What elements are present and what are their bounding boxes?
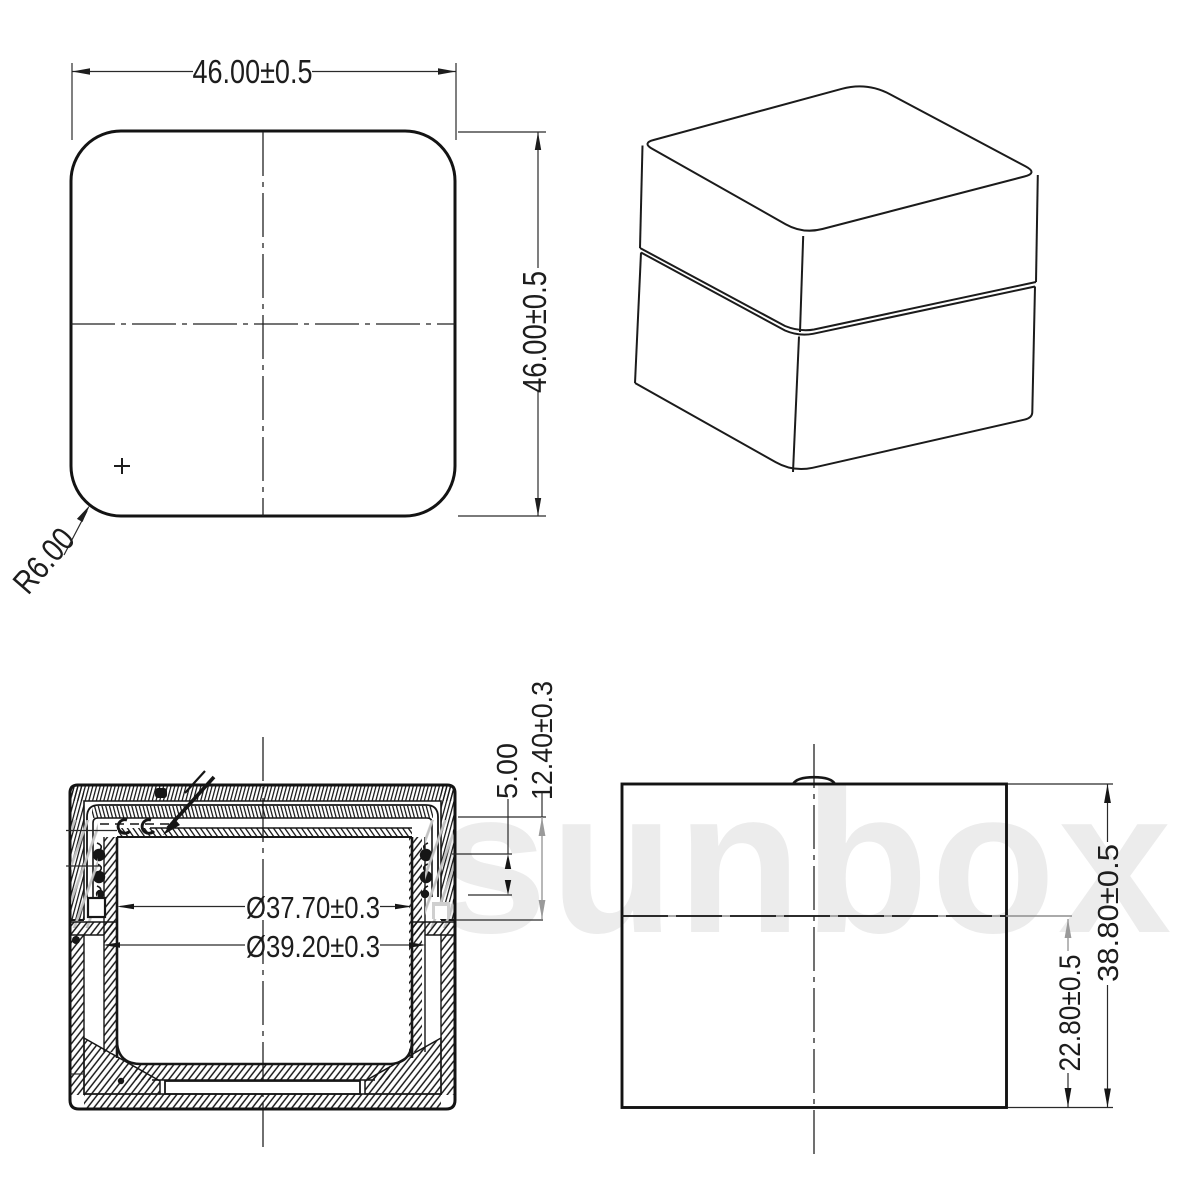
svg-text:5.00: 5.00	[492, 743, 524, 799]
svg-text:12.40±0.3: 12.40±0.3	[527, 681, 559, 800]
svg-text:22.80±0.5: 22.80±0.5	[1054, 955, 1087, 1072]
svg-text:46.00±0.5: 46.00±0.5	[193, 53, 313, 90]
svg-text:Ø39.20±0.3: Ø39.20±0.3	[246, 929, 380, 964]
svg-text:38.80±0.5: 38.80±0.5	[1093, 844, 1125, 982]
svg-text:46.00±0.5: 46.00±0.5	[516, 271, 553, 393]
svg-text:Ø37.70±0.3: Ø37.70±0.3	[246, 890, 380, 925]
